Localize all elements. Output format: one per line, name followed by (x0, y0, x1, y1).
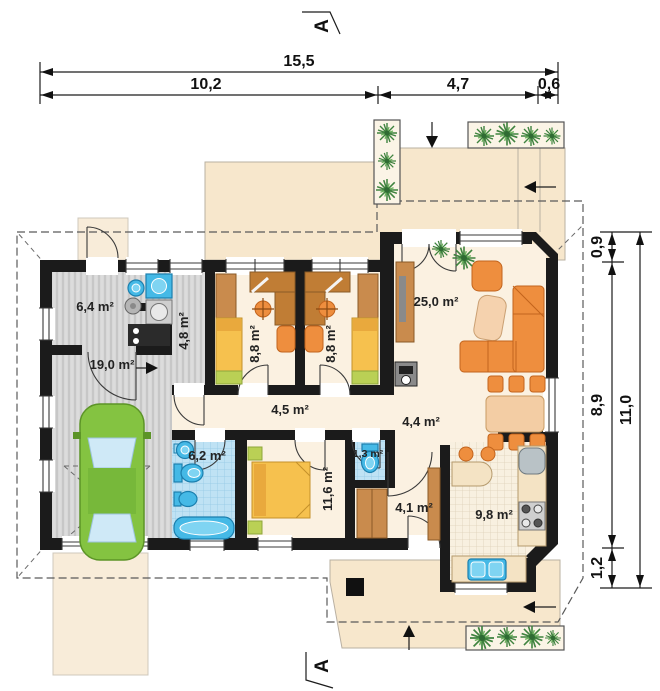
window (37, 308, 55, 340)
door-opening (295, 428, 325, 442)
room-label-hallway: 4,5 m² (271, 402, 309, 417)
plant-icon (377, 123, 397, 143)
bidet (179, 492, 197, 507)
room-garage (73, 404, 151, 560)
dim-total-width: 15,5 (283, 53, 314, 70)
room-label-utility: 6,4 m² (76, 299, 114, 314)
fridge (519, 448, 545, 474)
room-label-wc: 1,3 m² (353, 448, 384, 460)
room-label-living: 25,0 m² (414, 294, 459, 309)
plant-icon (496, 123, 519, 146)
dim-right-seg1: 0,9 (589, 236, 606, 258)
room-label-bathroom: 6,2 m² (188, 448, 226, 463)
section-marker-label: A (312, 19, 333, 33)
bed-foot (352, 371, 378, 384)
dim-seg2: 4,7 (447, 76, 469, 93)
nightstand (248, 447, 262, 460)
plant-icon (378, 152, 396, 170)
chimney (346, 578, 364, 596)
door-opening (352, 428, 380, 442)
window (126, 257, 158, 275)
driveway (53, 553, 148, 675)
section-marker-bottom: A (306, 652, 333, 688)
armchair (277, 326, 295, 352)
plant-icon (521, 126, 541, 146)
bar-stool (459, 447, 473, 461)
bed-foot (216, 371, 242, 384)
window (460, 229, 522, 247)
plant-icon (474, 126, 494, 146)
desk (275, 292, 295, 325)
car-mirror (73, 432, 81, 439)
car-roof (88, 468, 136, 514)
room-label-hall: 4,4 m² (402, 414, 440, 429)
window (170, 257, 202, 275)
window (543, 378, 561, 432)
wardrobe (216, 274, 236, 322)
pillow (353, 319, 377, 331)
dining-chair (530, 376, 545, 392)
bar-stool (481, 447, 495, 461)
plant-icon (521, 626, 544, 649)
plant-icon (545, 630, 561, 646)
room-label-corridor: 4,8 m² (176, 312, 191, 350)
pillow (254, 464, 266, 516)
car-mirror (143, 432, 151, 439)
dim-seg3: 0,6 (538, 76, 560, 93)
room-label-garage: 19,0 m² (90, 357, 135, 372)
armchair (305, 326, 323, 352)
dim-right-seg2: 8,9 (589, 394, 606, 416)
car-rear-window (88, 514, 136, 542)
room-label-bedroom1: 8,8 m² (247, 325, 262, 363)
plant-icon (497, 627, 517, 647)
floor-plan-drawing: 6,4 m² 4,8 m² 19,0 m² 8,8 m² 8,8 m² 25,0… (0, 0, 660, 691)
window (258, 535, 292, 553)
car-windshield (88, 438, 136, 468)
wardrobe (358, 274, 378, 322)
entry-porch (78, 218, 128, 260)
sofa (513, 286, 544, 372)
room-label-bedroom2: 8,8 m² (323, 325, 338, 363)
door-opening (320, 383, 350, 397)
room-utility (125, 274, 172, 346)
floor-plan-page: 6,4 m² 4,8 m² 19,0 m² 8,8 m² 8,8 m² 25,0… (0, 0, 660, 691)
door-opening (238, 383, 268, 397)
dimensions-right: 0,9 8,9 1,2 11,0 (589, 232, 652, 588)
room-label-bedroom3: 11,6 m² (320, 466, 335, 511)
entrance-arrow-icon (426, 136, 438, 148)
door-opening (174, 383, 204, 397)
plant-icon (432, 240, 450, 258)
tv (399, 276, 406, 322)
room-label-entry: 4,1 m² (395, 500, 433, 515)
dining-table (486, 396, 544, 432)
window (37, 396, 55, 428)
dimensions-top: 15,5 10,2 4,7 0,6 (40, 53, 560, 104)
dim-seg1: 10,2 (190, 76, 221, 93)
door-opening (195, 428, 225, 442)
dining-chair (509, 376, 524, 392)
dim-right-total: 11,0 (618, 395, 635, 425)
entry-door-opening (86, 257, 118, 275)
breakfast-bar (452, 462, 492, 486)
dim-right-seg3: 1,2 (589, 557, 606, 579)
room-label-kitchen: 9,8 m² (475, 507, 513, 522)
section-marker-top: A (302, 12, 340, 34)
section-marker-label: A (312, 659, 333, 673)
armchair (472, 261, 502, 291)
dining-chair (488, 376, 503, 392)
window (37, 460, 55, 492)
plant-icon (453, 247, 476, 270)
nightstand (248, 521, 262, 534)
pillow (217, 319, 241, 331)
